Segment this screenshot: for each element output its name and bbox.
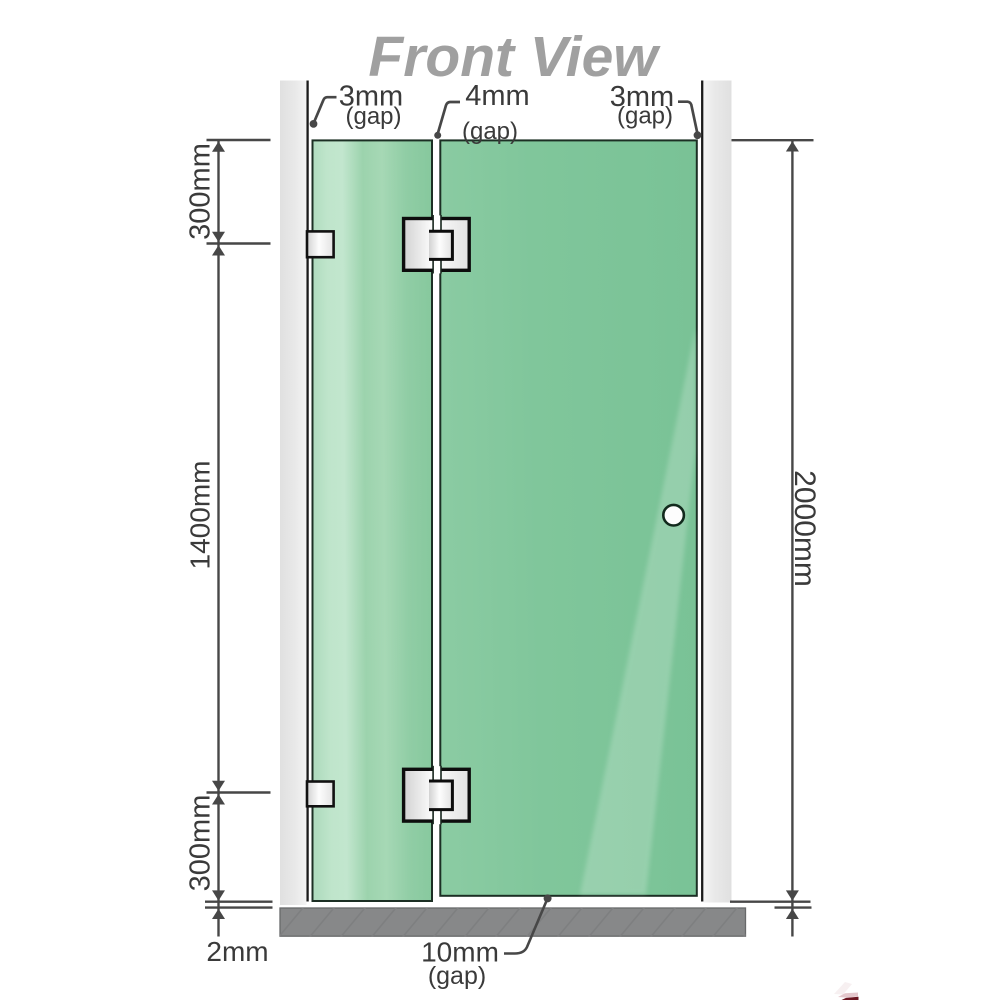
svg-text:1400mm: 1400mm [185,461,216,570]
svg-text:300mm: 300mm [185,795,217,892]
svg-text:2mm: 2mm [206,936,268,967]
svg-text:2000mm: 2000mm [788,470,821,587]
svg-text:(gap): (gap) [617,103,673,130]
svg-text:300mm: 300mm [185,143,217,240]
svg-text:(gap): (gap) [428,962,486,990]
svg-text:(gap): (gap) [462,118,518,145]
svg-text:(gap): (gap) [345,103,401,130]
svg-text:4mm: 4mm [465,80,529,112]
